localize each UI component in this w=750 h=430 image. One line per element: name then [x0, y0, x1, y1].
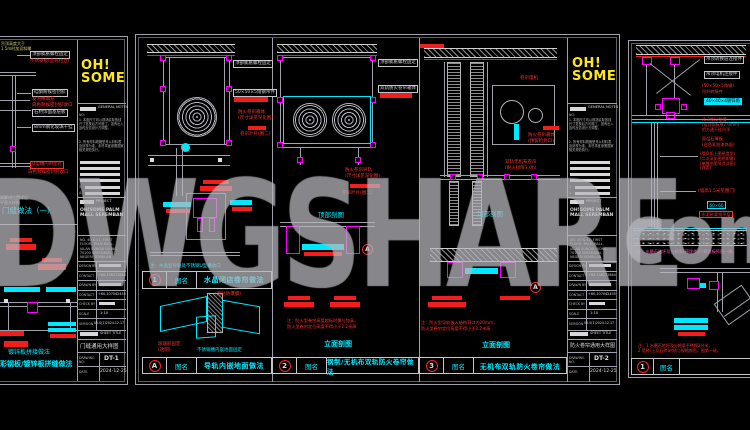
tb-bar — [80, 167, 120, 170]
view-label: 顶部剖图 — [477, 208, 503, 218]
tb-line — [77, 352, 126, 353]
red-line — [424, 59, 557, 60]
field-label: DRAWN BY — [569, 283, 586, 287]
cyan-bar — [4, 287, 40, 292]
red-bar — [500, 296, 530, 300]
tb-note: 2. 所有材料规格型号以材料表及封样为准，未尽事宜参照国家相关规范执行。 — [569, 140, 614, 153]
node — [297, 157, 303, 163]
node — [160, 140, 166, 146]
cyan-bar — [46, 287, 76, 292]
project-name: OH!SOME PALMMALL SEREMBAN — [80, 208, 123, 218]
detail-number: 1 — [637, 361, 649, 373]
bracket — [655, 104, 661, 110]
node — [226, 86, 232, 92]
field-label: SCALE — [79, 312, 89, 316]
cyan-bar — [674, 325, 708, 330]
note: 注：水晶型导轨处不锈钢U型槽收口 — [150, 263, 221, 269]
tb-line — [567, 339, 617, 340]
terrazzo-floor — [633, 230, 747, 246]
tb-line — [567, 271, 617, 272]
callout-box: 顶部膨胀螺栓固定 — [378, 59, 418, 67]
line — [487, 62, 488, 177]
detail-number: 2 — [279, 360, 291, 372]
tb-bar — [80, 200, 94, 204]
column-divider — [419, 38, 420, 382]
view-label: 立面剖图 — [482, 340, 510, 350]
view-label: 顶部剖图 — [318, 209, 344, 219]
field-value: 1:10 — [590, 311, 598, 315]
field-label: DESIGN BY — [569, 264, 586, 268]
rail-node — [27, 302, 38, 313]
line — [150, 252, 240, 253]
cyan-bar — [48, 322, 76, 326]
section-ref: A — [530, 282, 541, 293]
tb-line — [567, 261, 617, 262]
red-bar — [678, 332, 705, 336]
fire-curtain-track — [470, 62, 484, 177]
drawing-name-label: 图名 — [297, 358, 327, 373]
wall-line — [657, 123, 658, 228]
line — [660, 272, 750, 273]
node — [477, 174, 483, 180]
wall-line — [654, 123, 655, 228]
red-bar — [334, 296, 356, 300]
drawing-name — [680, 359, 750, 374]
field-label: CHECK BY — [569, 302, 585, 306]
detail-title-strip: 1 图名 — [631, 358, 750, 375]
tb-line — [567, 352, 617, 353]
wall-line — [651, 123, 652, 228]
tb-bar — [85, 186, 120, 189]
tb-line — [567, 366, 617, 367]
detail-number: 3 — [426, 360, 438, 372]
tb-note: 2. 所有材料规格型号以材料表及封样为准，未尽事宜参照国家相关规范执行。 — [79, 140, 124, 153]
label: 吊顶高度大于1.5m时加设斜撑 — [1, 41, 31, 51]
general-notes-label: GENERAL NOTES — [588, 105, 618, 109]
red-label: 白色耐候密封胶收口 — [28, 170, 69, 176]
line — [0, 75, 36, 76]
drawing-no: DT-1 — [104, 355, 119, 362]
red-bar — [166, 209, 190, 213]
address: NO. 40 & 41, FIRSTFLOOR, PALM MALL,JALAN… — [570, 238, 608, 259]
tb-text: NO: — [79, 113, 85, 117]
drawing-name-label: 图名 — [444, 358, 474, 373]
line — [280, 222, 375, 223]
sheet-title: 防火卷帘通用大样图 — [570, 342, 615, 349]
tb-line — [77, 261, 126, 262]
drawing-name-label: 图名 — [654, 359, 680, 374]
drawing-name-label: 图名 — [167, 272, 197, 288]
field-value-bar — [589, 283, 611, 286]
red-bar — [232, 207, 252, 211]
cyan-bar — [700, 283, 706, 288]
callout-box: 双轨防火卷帘箱体 — [378, 85, 418, 93]
tb-bar — [570, 107, 586, 111]
red-bar — [234, 97, 268, 102]
tb-line — [77, 339, 126, 340]
red-bar — [428, 302, 466, 307]
field-label: SCALE — [569, 312, 579, 316]
date-label: DATE: — [79, 370, 88, 374]
ceiling-slab-hatch — [636, 45, 746, 55]
divider — [0, 224, 77, 225]
callout-box: 8mm钢化玻璃干挂 — [32, 124, 75, 132]
node — [4, 299, 8, 303]
red-callout-box: U型槽内衬垫片 — [30, 161, 64, 169]
field-label: CONTACT — [569, 293, 584, 297]
bracket — [681, 104, 687, 110]
red-bar — [248, 126, 266, 130]
address: NO. 40 & 41, FIRSTFLOOR, PALM MALL,JALAN… — [80, 238, 118, 259]
guide-rail-profile — [346, 226, 360, 254]
tb-line — [567, 299, 617, 300]
field-label: DRAWN BY — [79, 283, 96, 287]
node — [226, 140, 232, 146]
tb-line — [567, 235, 617, 236]
tb-bar — [570, 332, 588, 336]
line — [0, 72, 36, 73]
tb-line — [77, 103, 126, 104]
field-value-bar — [589, 264, 611, 267]
node — [277, 55, 283, 61]
line — [660, 268, 750, 269]
red-bar — [543, 126, 559, 130]
red-bar — [330, 302, 360, 307]
drawing-no: DT-2 — [594, 355, 609, 362]
detail-number: A — [149, 360, 161, 372]
field-label: VERSION — [79, 322, 93, 326]
motor-pulley — [528, 108, 543, 123]
red-label: 防火卷帘箱体(尺寸详见深化图) — [238, 110, 273, 121]
tb-note: 1. 本图尺寸均以现场实际放线尺寸复核后方可施工，如有出入及时反馈设计方调整。 — [569, 118, 614, 131]
callout-box: 顶部膨胀螺栓固定 — [233, 60, 273, 68]
red-label: (墙高1.5米见图门) — [698, 189, 736, 195]
tb-bar — [80, 179, 120, 182]
line — [182, 148, 183, 196]
guide-rail-leg — [209, 218, 215, 232]
tb-text: NO: — [569, 113, 575, 117]
line — [8, 302, 9, 330]
node — [160, 55, 166, 61]
tb-line — [77, 318, 126, 319]
node — [218, 158, 222, 162]
red-bar — [42, 258, 62, 262]
field-label: CONTACT — [569, 274, 584, 278]
tb-text: 4. — [569, 191, 572, 195]
tb-bar — [80, 107, 96, 111]
red-bar — [200, 186, 232, 191]
glass-panel-3d — [196, 315, 216, 338]
cyan-label: 不锈钢槽内嵌地面固定 — [197, 347, 242, 353]
shutter-drum — [177, 97, 217, 137]
note: 注：1.水磨石地坪及分格条不锈钢2分米。2.墙砖(上及石砖)材质与规格颜色，图第… — [638, 343, 721, 353]
field-value: +60-138372844 — [98, 273, 126, 277]
guide-rail-profile — [500, 262, 516, 278]
red-bar — [0, 331, 24, 336]
tb-text: 3. — [569, 185, 572, 189]
tb-line — [567, 318, 617, 319]
callout-box: 吊顶电机连接件 — [704, 71, 740, 79]
cyan-bar — [230, 200, 252, 205]
curtain-drop — [449, 181, 459, 226]
red-bar — [284, 302, 314, 307]
node — [160, 86, 166, 92]
tb-bar — [85, 192, 120, 195]
note: 注：防火型卷帘高度超标时需与加高，防火型卷帘定位高度不得小于2.2米高 — [287, 318, 358, 329]
hanger-clip — [670, 57, 680, 65]
cyan-bar — [465, 268, 498, 274]
date-value: 2024-12-25 — [590, 369, 617, 374]
red-bar — [304, 252, 342, 256]
fire-curtain-track — [447, 62, 461, 177]
field-value: +60-138372844 — [588, 273, 616, 277]
line — [0, 306, 77, 307]
field-label: CONTACT — [79, 274, 94, 278]
cyan-line — [15, 75, 16, 168]
cyan-bar — [48, 328, 76, 332]
tb-bar — [570, 167, 610, 170]
field-value: +60-107042455 — [588, 292, 616, 296]
tb-text: 3. — [79, 185, 82, 189]
floor-slab-hatch — [430, 248, 557, 262]
red-bar — [203, 180, 229, 184]
tb-line — [77, 299, 126, 300]
line — [632, 115, 750, 116]
shutter-drum — [293, 103, 327, 137]
cyan-bar — [163, 202, 191, 207]
red-bar — [38, 264, 66, 270]
red-label: (1.2厚)U型槽(镀锌钢板厚2.0mm)铝方通干挂吊顶 — [702, 118, 739, 132]
red-label: (墙身如上图纸造型)(二次深化图纸如需)(单独出图节点详图)(饰面) — [700, 152, 735, 171]
section-ref: A — [362, 244, 373, 255]
field-value-bar — [99, 264, 121, 267]
tb-bar — [80, 332, 98, 336]
sheet-title: 门缝通用大样图 — [80, 342, 119, 350]
leader — [17, 93, 31, 94]
node — [226, 55, 232, 61]
tb-bar — [570, 161, 610, 164]
tb-line — [77, 290, 126, 291]
label: 踢脚线位置详见平面大样图 — [0, 195, 28, 205]
line — [148, 155, 230, 156]
tb-line — [567, 290, 617, 291]
red-bar — [350, 184, 380, 188]
line — [440, 175, 560, 176]
callout-box: 吊顶转换层连接件 — [704, 56, 744, 64]
line — [444, 62, 445, 177]
guide-rail-profile — [286, 226, 300, 254]
node — [504, 174, 510, 180]
field-label: CHECK BY — [79, 302, 95, 306]
node — [531, 174, 537, 180]
leader — [17, 110, 31, 111]
node — [450, 174, 456, 180]
cyan-bar — [302, 244, 344, 250]
tb-line — [77, 271, 126, 272]
oh-some-logo: OH!SOME — [81, 60, 125, 85]
red-bar — [288, 296, 310, 300]
motor-pulley — [500, 100, 524, 124]
guide-rail-profile — [687, 278, 700, 289]
drawing-no-label: DRAWING NO: — [79, 356, 97, 364]
red-bar — [432, 296, 462, 300]
red-line — [277, 55, 377, 56]
node — [150, 158, 154, 162]
line — [12, 75, 13, 168]
red-bar — [380, 93, 412, 98]
leader — [17, 55, 30, 56]
tb-bar — [570, 200, 584, 204]
tb-line — [77, 235, 126, 236]
cad-drawing-canvas: 吊顶高度大于1.5m时加设斜撑 顶部膨胀螺栓固定 不锈钢板(亚光拉丝) 硅酮耐候… — [0, 0, 750, 430]
callout-box: 硅酮耐候密封胶 — [32, 89, 68, 97]
field-value-bar — [99, 302, 115, 305]
drawing-name: 导轨内嵌地面做法 — [197, 358, 271, 373]
red-bar — [50, 334, 76, 338]
tb-line — [77, 366, 126, 367]
cyan-line — [633, 228, 747, 229]
red-label: 防火卷帘导轨(尺寸详见深化图) — [345, 168, 380, 179]
line — [0, 100, 30, 101]
tb-line — [567, 280, 617, 281]
date-label: DATE: — [569, 370, 578, 374]
red-label: 双轨无机布卷帘(耐火极限3.0h) — [505, 160, 537, 171]
line — [148, 165, 230, 166]
cyan-callout-box: 60×60 — [707, 201, 726, 209]
red-label: 卷帘叶片(图二) — [240, 132, 271, 138]
tb-bar — [80, 161, 120, 164]
tb-line — [567, 103, 617, 104]
cyan-bar — [674, 318, 708, 323]
guide-rail-profile — [193, 198, 217, 218]
callout-box: 50×50×5角钢吊件 — [233, 89, 277, 97]
field-label: DESIGN BY — [79, 264, 96, 268]
tb-note: 1. 本图尺寸均以现场实际放线尺寸复核后方可施工，如有出入及时反馈设计方调整。 — [79, 118, 124, 131]
line — [224, 57, 225, 145]
red-label: 不锈钢板(亚光拉丝) — [30, 59, 70, 65]
tb-line — [77, 280, 126, 281]
note: 注：防火型导轨嵌入结构洞口内20mm，防火型卷帘定位高度不得小于2.2米高 — [421, 320, 497, 331]
drawing-name: 水晶闭店卷帘做法 — [197, 272, 271, 288]
line — [440, 179, 560, 180]
leader — [660, 191, 696, 192]
red-label: 玻璃胶固定(透明) — [158, 342, 181, 353]
node — [355, 157, 361, 163]
callout-box: 石材饰面基层板 — [32, 109, 68, 117]
field-value-bar — [589, 302, 605, 305]
drawing-no-label: DRAWING NO: — [569, 356, 587, 364]
field-value-bar — [99, 283, 121, 286]
line — [150, 255, 240, 256]
guide-rail-profile — [447, 262, 463, 278]
detail-caption: 彩钢板/镀锌板拼缝做法 — [0, 359, 73, 369]
cyan-bar — [514, 124, 519, 140]
detail-title-strip: 3 图名 无机布双轨防火卷帘做法 — [419, 357, 567, 374]
tb-line — [567, 309, 617, 310]
guide-rail-leg — [197, 218, 203, 232]
node — [66, 299, 70, 303]
red-label: 卷帘叶片(图二) — [342, 191, 373, 197]
red-label: 卷帘电机 — [520, 76, 538, 82]
tb-bar — [570, 179, 610, 182]
sheet-title-label: SHEET TITLE — [590, 331, 611, 335]
tb-bar — [575, 192, 610, 195]
tb-line — [77, 309, 126, 310]
ceiling-slab-hatch — [424, 48, 557, 58]
tb-line — [567, 197, 617, 198]
tb-text: 4. — [79, 191, 82, 195]
project-label: PROJECT — [586, 199, 602, 203]
field-label: VERSION — [569, 322, 583, 326]
red-label: (50×50×5角钢)吊杆转接件 — [702, 83, 734, 94]
field-value: V5.0(1)2024.12.17 — [94, 321, 124, 325]
detail-number: 1 — [149, 274, 161, 286]
drawing-name: 无机布双轨防火卷帘做法 — [474, 358, 566, 373]
note: 注：水磨石地坪及分格条(预埋件)与预埋板预图一致。 — [637, 249, 737, 255]
line — [176, 148, 177, 196]
tb-bar — [570, 173, 610, 176]
tb-bar — [575, 186, 610, 189]
red-bar — [6, 244, 36, 250]
hanger-rod — [646, 65, 647, 115]
detail-caption: 镀锌板拼接做法 — [8, 347, 50, 356]
field-value: V5.0(1)2024.12.17 — [584, 321, 614, 325]
leader — [660, 156, 698, 157]
project-label: PROJECT — [96, 199, 112, 203]
ceiling-slab-hatch — [147, 44, 235, 53]
field-value: 1:10 — [100, 311, 108, 315]
detail-title-strip: A 图名 导轨内嵌地面做法 — [142, 357, 272, 374]
detail-title-strip: 1 图名 水晶闭店卷帘做法 — [142, 271, 272, 289]
cyan-highlight-label: 40×40×4镀锌角钢 — [704, 98, 742, 105]
red-label: 发泡棒填充白色耐候密封胶收口 — [32, 97, 73, 108]
detail-title-strip: 2 图名 钢制/无机布双轨防火卷帘做法 — [272, 357, 419, 374]
date-value: 2024-12-25 — [100, 369, 127, 374]
guide-rail-profile — [709, 281, 719, 290]
field-label: CONTACT — [79, 293, 94, 297]
red-label: 面层石膏板(白色乳胶漆饰面) — [702, 136, 735, 147]
general-notes-label: GENERAL NOTES — [98, 105, 128, 109]
sheet-title-label: SHEET TITLE — [100, 331, 121, 335]
red-bar — [10, 238, 32, 242]
red-label: 防火卷帘箱体(预留检修口) — [528, 133, 555, 144]
view-label: 立面剖图 — [324, 339, 352, 349]
callout-box: 顶部膨胀螺栓固定 — [30, 51, 70, 59]
project-name: OH!SOME PALMMALL SEREMBAN — [570, 208, 613, 218]
tb-bar — [80, 173, 120, 176]
drawing-name: 钢制/无机布双轨防火卷帘做法 — [327, 358, 418, 373]
node — [10, 146, 16, 152]
tb-line — [77, 197, 126, 198]
ceiling-slab-hatch — [277, 44, 377, 53]
drawing-name-label: 图名 — [167, 358, 197, 373]
line — [169, 57, 170, 145]
field-value: +60-107042455 — [98, 292, 126, 296]
shutter-drum — [332, 103, 366, 137]
leader — [17, 127, 31, 128]
curtain-drop — [472, 181, 482, 226]
detail-caption: 门缝做法（一） — [2, 205, 55, 216]
node — [370, 55, 376, 61]
oh-some-logo: OH!SOME — [572, 58, 616, 83]
tb-line — [589, 352, 590, 382]
red-callout-box: 水泥砂浆找平层 — [699, 211, 733, 218]
